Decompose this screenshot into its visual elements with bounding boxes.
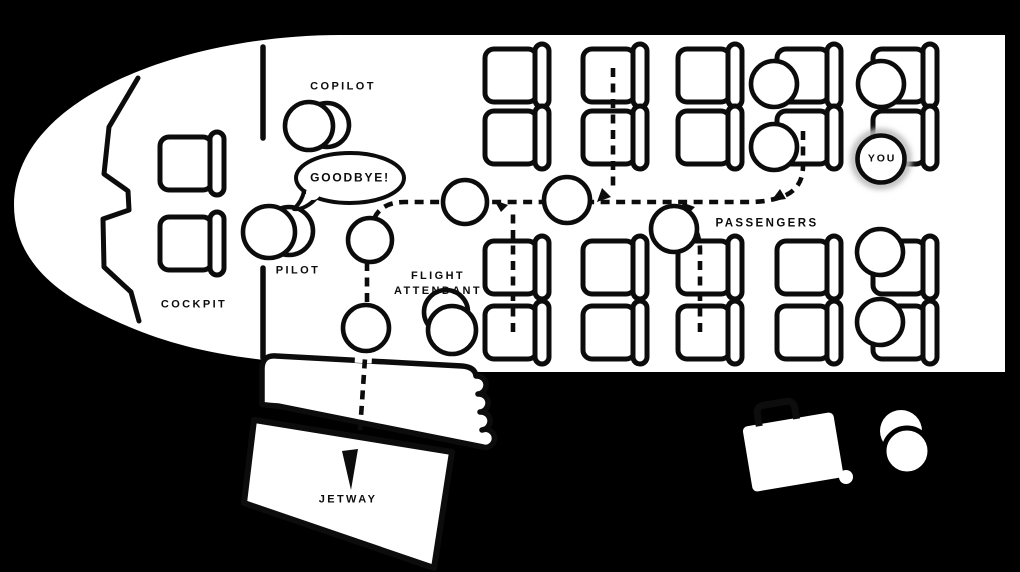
goodbye-bubble-text: GOODBYE! bbox=[310, 171, 390, 186]
seat-icon bbox=[583, 301, 647, 364]
diagram-art bbox=[0, 0, 1020, 572]
seat-icon bbox=[777, 236, 841, 299]
cockpit-label: COCKPIT bbox=[161, 298, 227, 313]
person-circle-icon bbox=[751, 61, 797, 107]
suitcase-wheel-icon bbox=[839, 470, 853, 484]
passengers-label: PASSENGERS bbox=[715, 217, 818, 232]
seat-icon bbox=[678, 106, 742, 169]
walking-person-icon bbox=[880, 410, 930, 474]
seat-icon bbox=[485, 44, 549, 107]
seat-icon bbox=[777, 301, 841, 364]
seat-icon bbox=[160, 212, 224, 275]
flight-attendant-label: FLIGHT ATTENDANT bbox=[394, 269, 482, 299]
pilot-icon bbox=[243, 206, 313, 258]
person-circle-icon bbox=[857, 299, 903, 345]
person-circle-icon bbox=[544, 177, 590, 223]
person-circle-icon bbox=[348, 218, 392, 262]
person-circle-icon bbox=[858, 61, 904, 107]
copilot-icon bbox=[285, 102, 349, 150]
seat-icon bbox=[678, 44, 742, 107]
seat-icon bbox=[485, 106, 549, 169]
person-circle-icon bbox=[343, 305, 389, 351]
seat-icon bbox=[160, 132, 224, 195]
person-circle-icon bbox=[857, 229, 903, 275]
pilot-label: PILOT bbox=[276, 264, 320, 279]
person-circle-icon bbox=[751, 124, 797, 170]
bubble-seam bbox=[306, 186, 320, 200]
person-circle-icon bbox=[443, 180, 487, 224]
you-label: YOU bbox=[868, 152, 896, 167]
seat-icon bbox=[485, 236, 549, 299]
copilot-label: COPILOT bbox=[310, 80, 376, 95]
luggage bbox=[739, 394, 853, 492]
deplaning-diagram: COCKPIT PILOT COPILOT FLIGHT ATTENDANT P… bbox=[0, 0, 1020, 572]
seat-icon bbox=[678, 301, 742, 364]
jetway-label: JETWAY bbox=[319, 493, 378, 508]
seat-icon bbox=[583, 236, 647, 299]
seat-icon bbox=[485, 301, 549, 364]
person-circle-icon bbox=[651, 206, 697, 252]
